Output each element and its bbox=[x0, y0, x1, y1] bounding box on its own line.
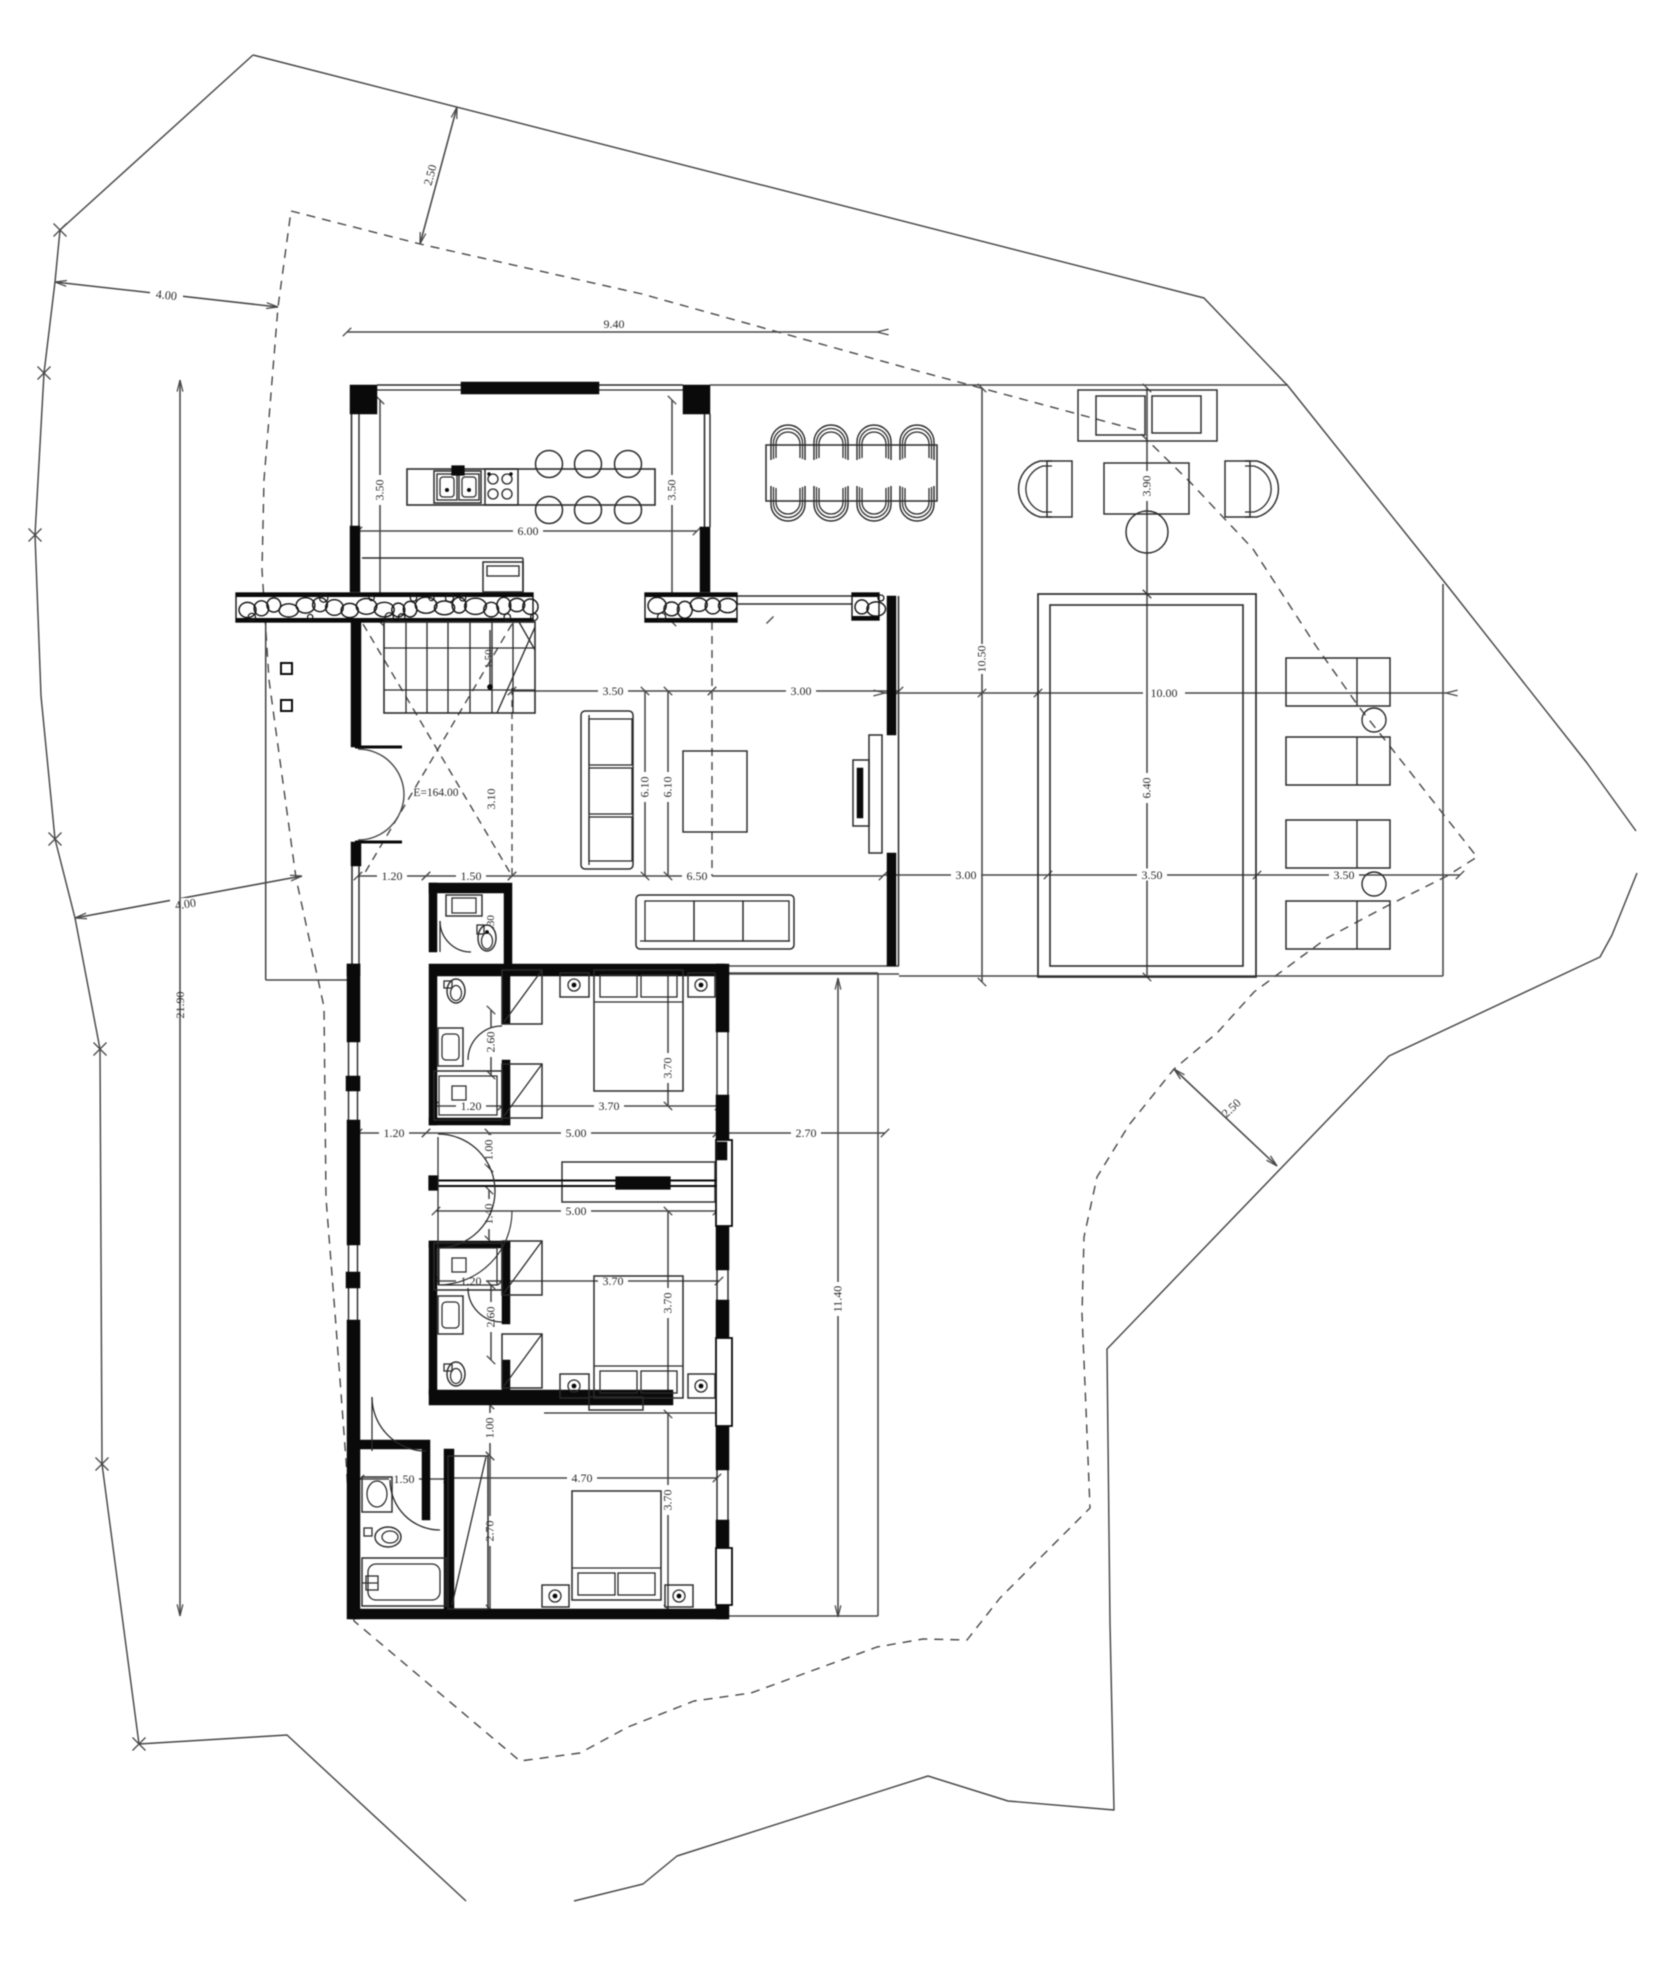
svg-text:3.70: 3.70 bbox=[599, 1099, 620, 1113]
svg-text:6.10: 6.10 bbox=[660, 777, 674, 798]
svg-text:5.00: 5.00 bbox=[566, 1126, 587, 1140]
svg-text:2.60: 2.60 bbox=[483, 1307, 497, 1328]
svg-text:5.00: 5.00 bbox=[566, 1204, 587, 1218]
svg-text:10.00: 10.00 bbox=[1151, 686, 1178, 700]
svg-text:3.70: 3.70 bbox=[660, 1058, 674, 1079]
svg-text:3.50: 3.50 bbox=[372, 480, 386, 501]
svg-text:1.20: 1.20 bbox=[461, 1099, 482, 1113]
svg-text:6.50: 6.50 bbox=[687, 869, 708, 883]
svg-text:1.20: 1.20 bbox=[384, 1126, 405, 1140]
svg-text:3.00: 3.00 bbox=[956, 868, 977, 882]
svg-text:3.90: 3.90 bbox=[1139, 476, 1153, 497]
svg-text:3.70: 3.70 bbox=[660, 1490, 674, 1511]
svg-text:6.00: 6.00 bbox=[518, 524, 539, 538]
svg-text:4.70: 4.70 bbox=[572, 1471, 593, 1485]
svg-text:4.00: 4.00 bbox=[155, 287, 177, 303]
svg-text:9.40: 9.40 bbox=[604, 317, 625, 331]
svg-text:E=164.00: E=164.00 bbox=[413, 787, 458, 799]
svg-text:3.50: 3.50 bbox=[1142, 868, 1163, 882]
svg-text:1.00: 1.00 bbox=[482, 1418, 496, 1439]
svg-text:1.50: 1.50 bbox=[461, 869, 482, 883]
svg-text:3.50: 3.50 bbox=[603, 684, 624, 698]
svg-text:2.70: 2.70 bbox=[482, 1521, 496, 1542]
svg-text:3.70: 3.70 bbox=[660, 1293, 674, 1314]
svg-text:10.50: 10.50 bbox=[974, 646, 988, 673]
svg-text:2.60: 2.60 bbox=[483, 1032, 497, 1053]
svg-text:1.50: 1.50 bbox=[394, 1472, 415, 1486]
svg-text:6.40: 6.40 bbox=[1139, 778, 1153, 799]
svg-text:6.10: 6.10 bbox=[637, 777, 651, 798]
svg-text:2.70: 2.70 bbox=[796, 1126, 817, 1140]
svg-text:11.40: 11.40 bbox=[830, 1286, 844, 1313]
svg-text:3.50: 3.50 bbox=[1334, 868, 1355, 882]
svg-text:3.50: 3.50 bbox=[664, 480, 678, 501]
svg-text:21.90: 21.90 bbox=[173, 992, 187, 1019]
svg-text:3.10: 3.10 bbox=[484, 789, 498, 810]
svg-text:3.00: 3.00 bbox=[791, 684, 812, 698]
svg-text:1.50: 1.50 bbox=[483, 649, 495, 669]
svg-text:1.20: 1.20 bbox=[382, 869, 403, 883]
